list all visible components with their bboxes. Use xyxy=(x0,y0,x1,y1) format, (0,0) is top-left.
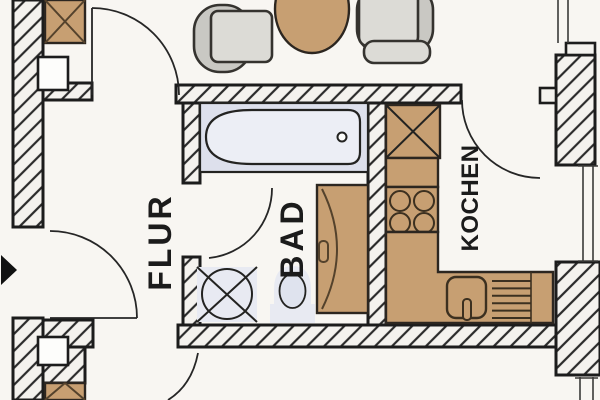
floor-plan: FLUR BAD KOCHEN xyxy=(0,0,600,400)
tall-cabinet xyxy=(386,105,440,158)
wall-right-upper xyxy=(556,55,595,165)
wall-left-upper xyxy=(13,0,43,227)
washing-machine xyxy=(197,267,257,322)
floor-plan-drawing: FLUR BAD KOCHEN xyxy=(0,0,600,400)
room-label-hall: FLUR xyxy=(142,193,178,290)
armchair-left-seat xyxy=(211,11,272,62)
wall-bottom-band xyxy=(178,325,557,347)
armchair-right-arm xyxy=(364,41,430,63)
base-cabinet xyxy=(386,158,438,187)
wall-bath-kitchen xyxy=(368,103,386,325)
wardrobe-bottom-left xyxy=(45,383,85,400)
wardrobe-top-left xyxy=(45,0,85,43)
wall-right-lower xyxy=(556,262,600,375)
cooktop xyxy=(386,187,438,233)
room-label-bath: BAD xyxy=(274,197,310,278)
wall-shaft-upper xyxy=(38,57,68,90)
wall-top-band xyxy=(176,85,461,103)
vanity-basin xyxy=(317,185,368,313)
room-label-kitchen: KOCHEN xyxy=(457,144,484,251)
door-jamb-kitchen xyxy=(540,88,556,103)
wall-shaft-lower xyxy=(38,337,68,365)
bathtub-drain xyxy=(338,133,347,142)
wall-ledge-top-right xyxy=(566,43,595,55)
wall-bath-left-upper xyxy=(183,103,200,183)
armchair-right-seat xyxy=(359,0,418,46)
